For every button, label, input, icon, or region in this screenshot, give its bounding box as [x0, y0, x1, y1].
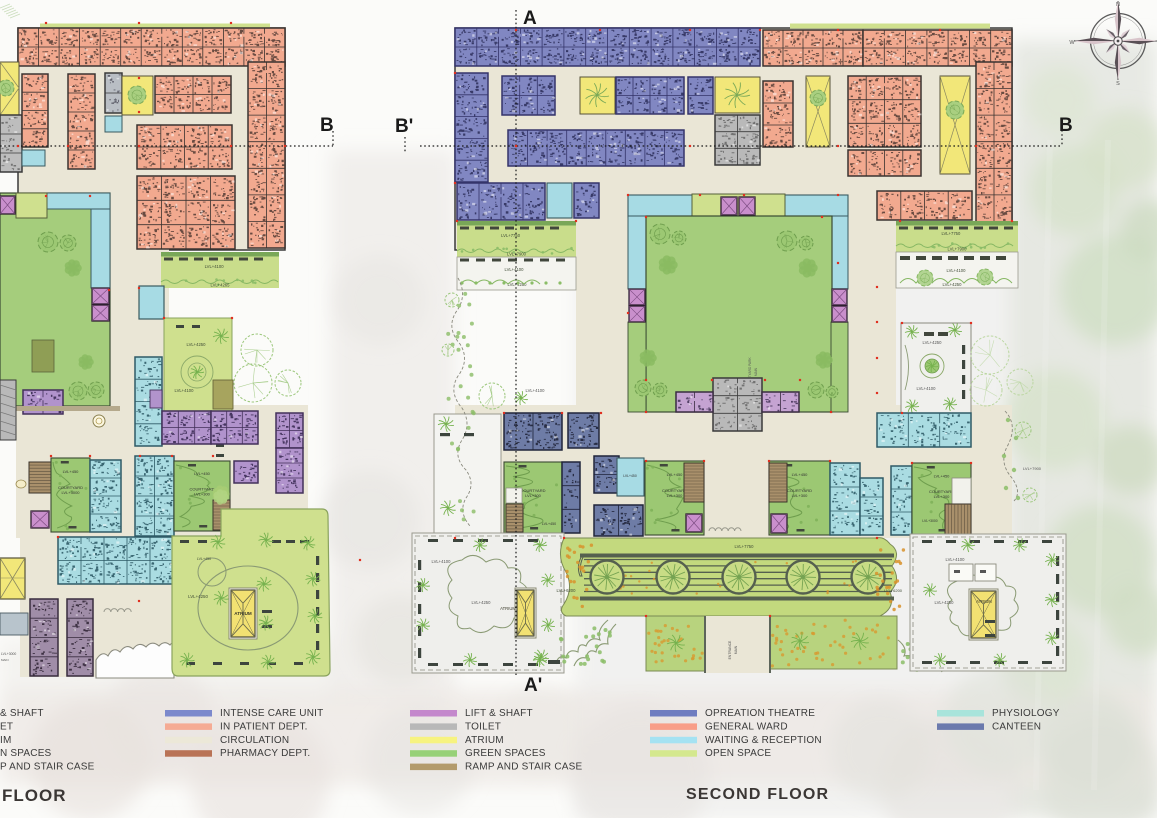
svg-text:PHARMACY DEPT.: PHARMACY DEPT. [220, 748, 310, 759]
svg-text:CIRCULATION: CIRCULATION [220, 735, 289, 746]
svg-text:LVL+4250: LVL+4250 [923, 340, 943, 345]
svg-text:LVL+4100: LVL+4100 [946, 557, 966, 562]
svg-text:A: A [523, 8, 537, 29]
svg-text:OPREATION THEATRE: OPREATION THEATRE [705, 708, 815, 719]
svg-text:A': A' [524, 675, 542, 696]
svg-text:ET: ET [0, 721, 13, 732]
svg-text:LVL+4250: LVL+4250 [943, 282, 963, 287]
svg-text:LVL+4100: LVL+4100 [205, 264, 225, 269]
svg-text:LVL+450: LVL+450 [792, 472, 809, 477]
svg-text:LVL+450: LVL+450 [542, 522, 556, 526]
svg-text:N SPACES: N SPACES [0, 748, 52, 759]
svg-text:LVL+300: LVL+300 [667, 493, 684, 498]
svg-text:LVL+7900: LVL+7900 [948, 247, 968, 252]
svg-text:LVL+4100: LVL+4100 [432, 559, 452, 564]
svg-text:S: S [1116, 81, 1120, 87]
svg-text:RAMP AND STAIR CASE: RAMP AND STAIR CASE [465, 762, 582, 773]
svg-text:LVL+6200: LVL+6200 [557, 588, 577, 593]
svg-text:MAIN: MAIN [1, 658, 9, 662]
svg-text:LVL+7750: LVL+7750 [501, 233, 521, 238]
svg-text:LVL+4100: LVL+4100 [175, 388, 195, 393]
svg-text:TOILET: TOILET [465, 721, 501, 732]
svg-text:LVL+4250: LVL+4250 [187, 342, 207, 347]
svg-text:FLOOR: FLOOR [2, 786, 67, 805]
svg-text:ATRIUM: ATRIUM [976, 599, 992, 604]
svg-text:P AND STAIR CASE: P AND STAIR CASE [0, 762, 95, 773]
svg-text:LVL+7900: LVL+7900 [1023, 466, 1042, 471]
svg-text:ATRIUM: ATRIUM [234, 611, 252, 616]
svg-text:LVL+4250: LVL+4250 [188, 594, 208, 599]
svg-text:LVL+4250: LVL+4250 [472, 600, 492, 605]
svg-text:GENERAL WARD: GENERAL WARD [705, 721, 788, 732]
svg-text:OPEN SPACE: OPEN SPACE [705, 748, 771, 759]
svg-text:LVL+300: LVL+300 [194, 491, 211, 496]
svg-text:B: B [1059, 115, 1073, 136]
svg-text:LVL+3000: LVL+3000 [1, 652, 16, 656]
svg-text:MAIN: MAIN [734, 645, 738, 654]
svg-text:& SHAFT: & SHAFT [0, 708, 44, 719]
svg-text:IN PATIENT DEPT.: IN PATIENT DEPT. [220, 721, 308, 732]
svg-text:LIFT & SHAFT: LIFT & SHAFT [465, 708, 533, 719]
svg-text:LVL+450: LVL+450 [63, 469, 80, 474]
svg-text:LVL+300: LVL+300 [934, 494, 951, 499]
svg-text:LVL+4100: LVL+4100 [917, 386, 937, 391]
svg-text:LVL+3000: LVL+3000 [922, 519, 937, 523]
svg-text:LVL+7750: LVL+7750 [941, 231, 961, 236]
svg-text:LVL+450: LVL+450 [194, 471, 211, 476]
svg-text:LVL+4250: LVL+4250 [935, 600, 955, 605]
svg-text:LVL+7900: LVL+7900 [507, 252, 527, 257]
svg-text:WAITING & RECEPTION: WAITING & RECEPTION [705, 735, 822, 746]
svg-text:IM: IM [0, 735, 12, 746]
svg-text:LVL+4100: LVL+4100 [947, 268, 967, 273]
svg-text:LVL+450: LVL+450 [667, 472, 684, 477]
svg-text:CANTEEN: CANTEEN [992, 721, 1041, 732]
svg-text:LVL+450: LVL+450 [197, 557, 211, 561]
svg-text:B': B' [395, 116, 413, 137]
svg-text:SECOND FLOOR: SECOND FLOOR [686, 786, 829, 803]
svg-text:LVL+300: LVL+300 [525, 493, 542, 498]
svg-text:GREEN SPACES: GREEN SPACES [465, 748, 546, 759]
svg-text:LVL+300: LVL+300 [792, 493, 809, 498]
svg-text:B: B [320, 115, 334, 136]
svg-text:LVL+4100: LVL+4100 [526, 388, 546, 393]
svg-text:ENTRANCE: ENTRANCE [728, 640, 732, 659]
svg-text:LVL+7750: LVL+7750 [735, 544, 755, 549]
svg-text:ATRIUM: ATRIUM [500, 606, 516, 611]
svg-text:PHYSIOLOGY: PHYSIOLOGY [992, 708, 1060, 719]
svg-text:N: N [1116, 2, 1120, 8]
svg-text:LVL+3000: LVL+3000 [61, 490, 80, 495]
svg-text:INTENSE CARE UNIT: INTENSE CARE UNIT [220, 708, 323, 719]
svg-text:LVL+450: LVL+450 [934, 473, 951, 478]
svg-text:LVL+4265: LVL+4265 [211, 283, 231, 288]
svg-text:LVL+4100: LVL+4100 [505, 267, 525, 272]
svg-text:LVL+6200: LVL+6200 [884, 588, 903, 593]
svg-text:MAIN: MAIN [754, 367, 758, 376]
svg-text:ATRIUM: ATRIUM [465, 735, 504, 746]
svg-text:LVL+450: LVL+450 [623, 474, 637, 478]
svg-text:W: W [1069, 40, 1075, 46]
